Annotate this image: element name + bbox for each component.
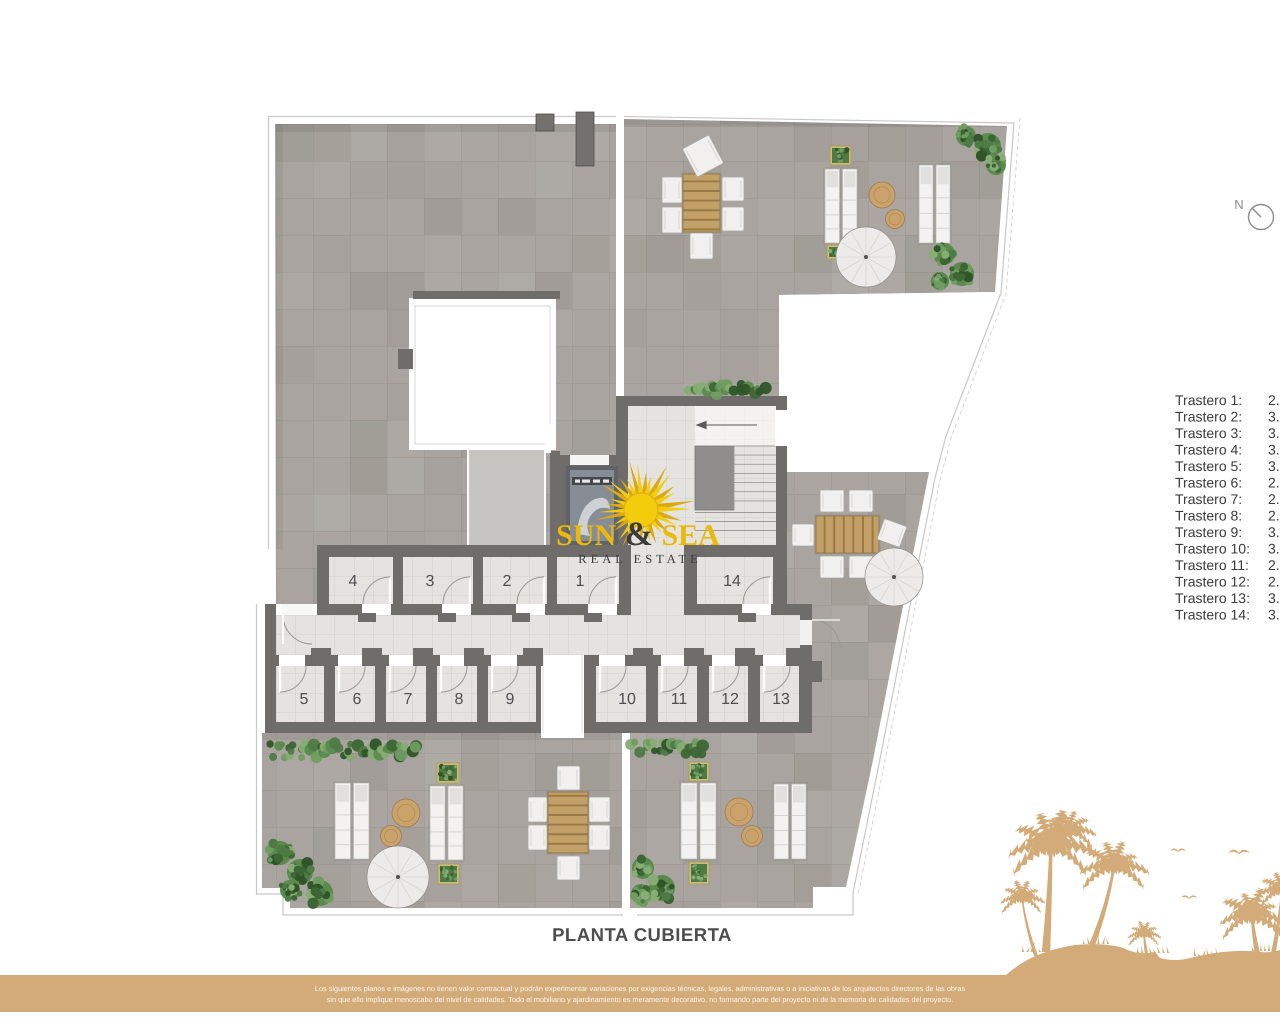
- svg-text:3.05 m²: 3.05 m²: [1268, 458, 1280, 474]
- svg-text:N: N: [1234, 197, 1243, 212]
- svg-text:7: 7: [404, 691, 413, 708]
- svg-text:8: 8: [455, 691, 464, 708]
- svg-text:3: 3: [426, 573, 435, 590]
- svg-text:PLANTA CUBIERTA: PLANTA CUBIERTA: [552, 924, 732, 945]
- svg-text:Trastero 13:: Trastero 13:: [1175, 590, 1250, 606]
- svg-text:Los siguientes planos e imágen: Los siguientes planos e imágenes no tien…: [315, 984, 966, 993]
- svg-text:10: 10: [618, 691, 636, 708]
- svg-text:SUN & SEA: SUN & SEA: [556, 516, 720, 553]
- svg-text:3.05 m²: 3.05 m²: [1268, 590, 1280, 606]
- svg-text:3.10 m²: 3.10 m²: [1268, 409, 1280, 425]
- svg-text:2.75 m²: 2.75 m²: [1268, 574, 1280, 590]
- svg-text:3.10 m²: 3.10 m²: [1268, 607, 1280, 623]
- svg-text:2.75 m²: 2.75 m²: [1268, 491, 1280, 507]
- svg-text:1: 1: [576, 573, 585, 590]
- svg-text:2: 2: [503, 573, 512, 590]
- svg-text:Trastero 10:: Trastero 10:: [1175, 541, 1250, 557]
- svg-text:14: 14: [723, 573, 741, 590]
- svg-text:REAL ESTATE: REAL ESTATE: [578, 552, 701, 566]
- svg-text:2.70 m²: 2.70 m²: [1268, 508, 1280, 524]
- svg-text:Trastero 8:: Trastero 8:: [1175, 508, 1242, 524]
- svg-text:Trastero 3:: Trastero 3:: [1175, 425, 1242, 441]
- svg-text:13: 13: [772, 691, 790, 708]
- svg-text:Trastero 2:: Trastero 2:: [1175, 409, 1242, 425]
- svg-text:Trastero 1:: Trastero 1:: [1175, 392, 1242, 408]
- svg-text:Trastero 5:: Trastero 5:: [1175, 458, 1242, 474]
- svg-text:sin que ello implique menoscab: sin que ello implique menoscabo del nive…: [327, 995, 954, 1004]
- svg-text:Trastero 12:: Trastero 12:: [1175, 574, 1250, 590]
- svg-text:Trastero 11:: Trastero 11:: [1175, 557, 1249, 573]
- svg-text:Trastero 7:: Trastero 7:: [1175, 491, 1242, 507]
- svg-text:Trastero 6:: Trastero 6:: [1175, 475, 1242, 491]
- svg-text:2.70 m²: 2.70 m²: [1268, 392, 1280, 408]
- svg-text:12: 12: [721, 691, 739, 708]
- svg-text:Trastero 4:: Trastero 4:: [1175, 442, 1242, 458]
- svg-text:3.10 m²: 3.10 m²: [1268, 524, 1280, 540]
- svg-text:Trastero 14:: Trastero 14:: [1175, 607, 1250, 623]
- svg-text:3.15 m²: 3.15 m²: [1268, 541, 1280, 557]
- svg-text:2.80 m²: 2.80 m²: [1268, 475, 1280, 491]
- svg-text:9: 9: [506, 691, 515, 708]
- svg-text:Trastero 9:: Trastero 9:: [1175, 524, 1242, 540]
- svg-text:11: 11: [671, 691, 688, 708]
- svg-text:5: 5: [300, 691, 309, 708]
- svg-text:3.15 m²: 3.15 m²: [1268, 425, 1280, 441]
- svg-text:6: 6: [353, 691, 362, 708]
- svg-text:3.20 m²: 3.20 m²: [1268, 442, 1280, 458]
- svg-text:2.80 m²: 2.80 m²: [1268, 557, 1280, 573]
- svg-text:4: 4: [349, 573, 358, 590]
